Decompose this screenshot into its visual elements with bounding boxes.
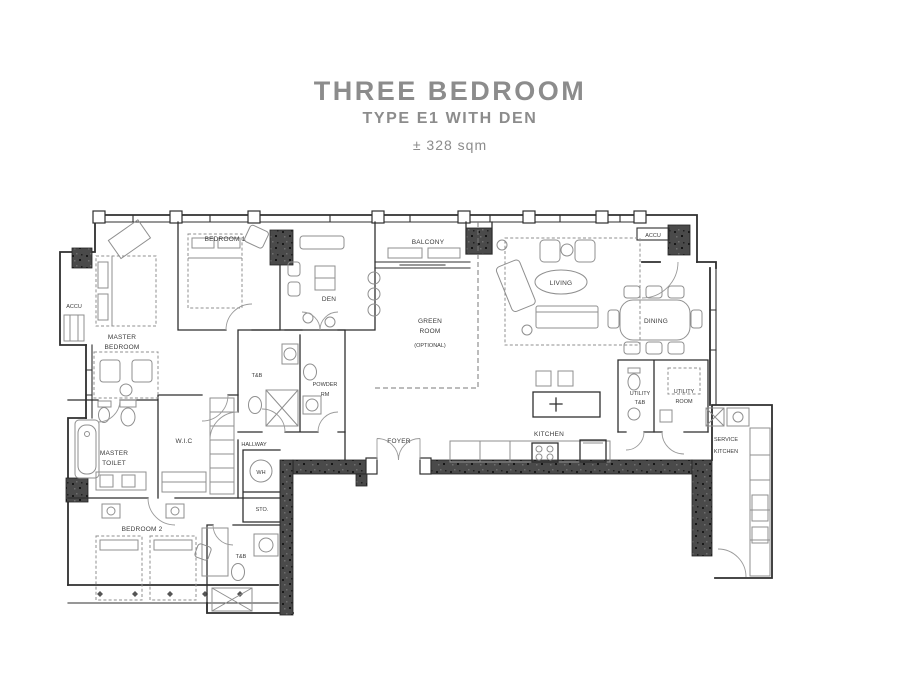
room-label-bedroom2: BEDROOM 2 [122, 526, 163, 533]
armchair [132, 360, 152, 382]
powder-fixtures [303, 364, 321, 414]
room-label-kitchen: KITCHEN [534, 431, 564, 438]
room-label-service-kitchen-1: SERVICE [714, 437, 738, 443]
armchair [100, 360, 120, 382]
room-label-utility-room-1: UTILITY [674, 389, 695, 395]
room-label-master-bedroom-1: MASTER [108, 334, 136, 341]
interior-walls [68, 222, 708, 613]
room-label-master-toilet-2: TOILET [102, 460, 126, 467]
room-label-master-toilet-1: MASTER [100, 450, 128, 457]
kitchen-island [533, 371, 600, 417]
den-furniture [288, 236, 344, 327]
accu-unit [64, 315, 84, 341]
room-label-tb-bed2: T&B [236, 554, 247, 560]
furniture [64, 220, 770, 611]
green-room-boundary [368, 222, 478, 388]
room-label-green-room-2: ROOM [419, 328, 440, 335]
living-furniture [495, 238, 640, 345]
room-label-living: LIVING [550, 280, 573, 287]
room-label-dining: DINING [644, 318, 668, 325]
room-label-utility-tb-1: UTILITY [630, 391, 651, 397]
door-arcs [98, 262, 746, 577]
bed2-tb-fixtures [212, 534, 278, 611]
room-label-powder-1: POWDER [313, 382, 338, 388]
room-labels: MASTER BEDROOM BEDROOM 1 ACCU DEN BALCON… [66, 233, 738, 560]
floor-plan-svg: MASTER BEDROOM BEDROOM 1 ACCU DEN BALCON… [0, 0, 900, 700]
exterior-walls [60, 215, 772, 613]
floorplan-page: THREE BEDROOM TYPE E1 WITH DEN ± 328 sqm [0, 0, 900, 700]
room-label-wic: W.I.C [176, 438, 193, 445]
room-label-service-kitchen-2: KITCHEN [714, 449, 738, 455]
room-label-wh: WH [256, 470, 265, 476]
room-label-utility-tb-2: T&B [635, 400, 646, 406]
master-bed [96, 256, 156, 326]
kitchen-counter [450, 440, 610, 462]
room-label-balcony: BALCONY [412, 239, 445, 246]
side-table [120, 384, 132, 396]
room-label-foyer: FOYER [387, 438, 410, 445]
room-label-master-bedroom-2: BEDROOM [105, 344, 140, 351]
room-label-den: DEN [322, 296, 336, 303]
balcony-furniture [388, 248, 460, 258]
room-label-accu-right: ACCU [645, 233, 661, 239]
room-label-hallway: HALLWAY [241, 442, 267, 448]
window-mullions [97, 591, 243, 597]
main-tb-fixtures [249, 344, 299, 426]
master-rug [94, 352, 158, 398]
room-label-tb-main: T&B [252, 373, 263, 379]
wic-wardrobes [162, 398, 234, 494]
room-label-green-room-1: GREEN [418, 318, 442, 325]
wall-columns [86, 211, 716, 395]
room-label-sto: STO. [256, 507, 269, 513]
room-label-accu-left: ACCU [66, 304, 82, 310]
room-label-utility-room-2: ROOM [675, 399, 693, 405]
concrete-walls [66, 225, 712, 615]
room-label-green-room-3: (OPTIONAL) [414, 343, 446, 349]
room-label-powder-2: RM [321, 392, 330, 398]
master-corner-desk [108, 220, 150, 259]
room-label-bedroom1: BEDROOM 1 [205, 236, 246, 243]
service-kitchen-fixtures [706, 408, 770, 576]
